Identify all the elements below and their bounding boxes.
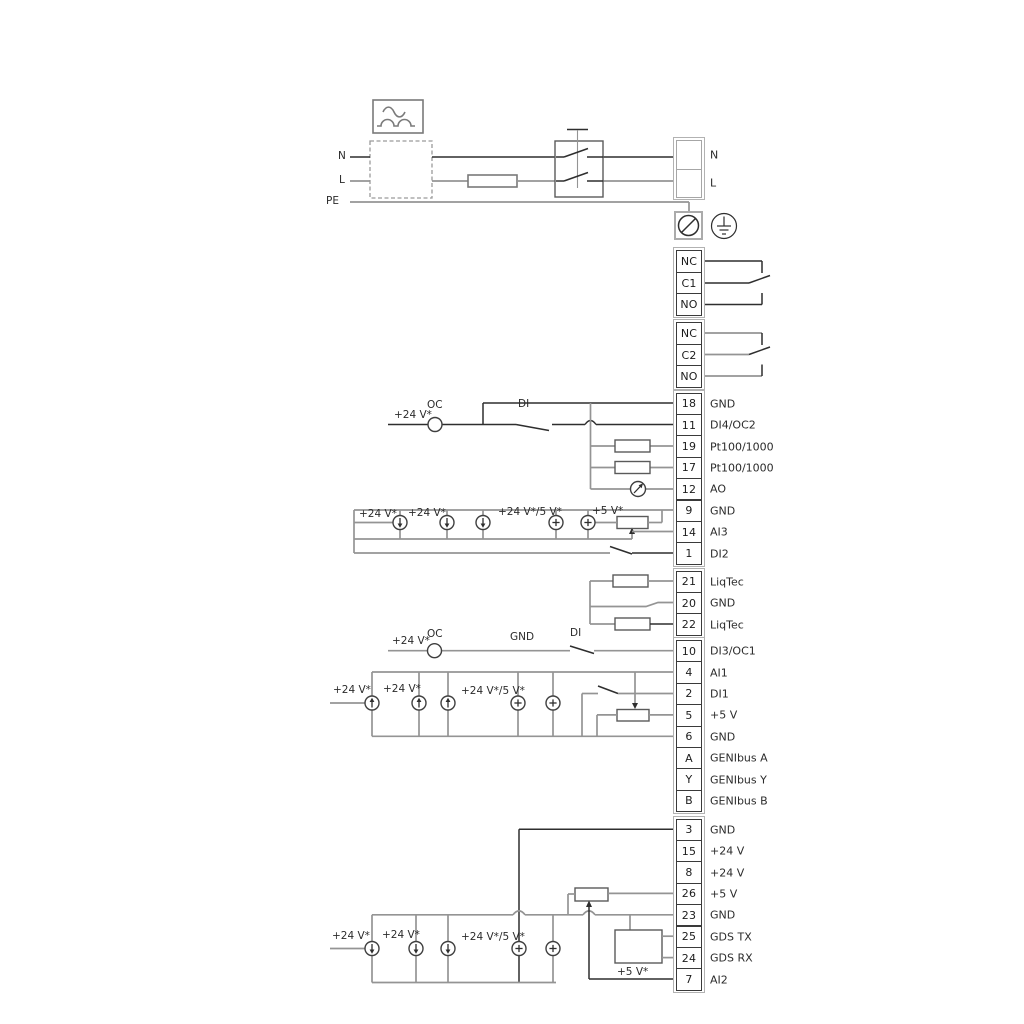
terminal-cell-20: 20 xyxy=(676,592,702,614)
ai1-di1-wiring xyxy=(330,672,676,736)
terminal-cell-A: A xyxy=(676,747,702,769)
terminal-label-5: +5 V xyxy=(710,709,737,722)
terminal-cell-4: 4 xyxy=(676,661,702,683)
terminal-label-N: N xyxy=(710,148,718,161)
terminal-label-22: LiqTec xyxy=(710,618,744,631)
voltage-source-icon xyxy=(546,696,560,710)
terminal-label-17: Pt100/1000 xyxy=(710,461,774,474)
terminal-label-25: GDS TX xyxy=(710,930,752,943)
terminal-cell-22: 22 xyxy=(676,613,702,635)
terminal-cell-12: 12 xyxy=(676,478,702,500)
terminal-label-L: L xyxy=(710,177,716,190)
terminal-cell-5: 5 xyxy=(676,704,702,726)
current-source-icon xyxy=(365,942,379,956)
terminal-label-Y: GENIbus Y xyxy=(710,773,767,786)
liqtec-resistor-icon xyxy=(613,575,648,587)
current-source-icon xyxy=(441,696,455,710)
terminal-cell-26: 26 xyxy=(676,883,702,905)
terminal-cell-NO: NO xyxy=(676,293,702,316)
wire-label-mains-pe: PE xyxy=(326,195,339,207)
earth-icon xyxy=(712,214,737,239)
terminal-cell-N xyxy=(676,140,702,170)
terminal-label-2: DI1 xyxy=(710,688,729,701)
terminal-cell-L xyxy=(676,169,702,199)
terminal-cell-6: 6 xyxy=(676,726,702,748)
terminal-label-12: AO xyxy=(710,483,726,496)
wire-label-ai1-24v-1: +24 V* xyxy=(333,684,371,696)
ai2-gds-wiring xyxy=(330,829,676,982)
current-source-icon xyxy=(412,696,426,710)
terminal-label-14: AI3 xyxy=(710,526,728,539)
potentiometer-icon xyxy=(617,710,649,722)
terminal-cell-21: 21 xyxy=(676,571,702,593)
terminal-label-18: GND xyxy=(710,397,735,410)
terminal-label-3: GND xyxy=(710,823,735,836)
terminal-cell-25: 25 xyxy=(676,926,702,948)
terminal-cell-14: 14 xyxy=(676,521,702,543)
terminal-cell-C2: C2 xyxy=(676,344,702,367)
wire-label-oc1-oc: OC xyxy=(427,628,443,640)
wire-label-mains-l: L xyxy=(339,174,345,186)
pt100-resistor-icon xyxy=(615,440,650,452)
terminal-label-4: AI1 xyxy=(710,666,728,679)
pt100-resistor-icon xyxy=(615,462,650,474)
wire-label-ai1-24v-2: +24 V* xyxy=(383,683,421,695)
terminal-cell-C1: C1 xyxy=(676,272,702,295)
terminal-cell-11: 11 xyxy=(676,414,702,436)
gds-module-box xyxy=(615,930,662,963)
relay2-contact-wiring xyxy=(702,333,770,376)
terminal-cell-NC: NC xyxy=(676,250,702,273)
main-switch-box xyxy=(555,141,603,197)
potentiometer-icon xyxy=(575,888,608,901)
terminal-cell-Y: Y xyxy=(676,768,702,790)
terminal-label-15: +24 V xyxy=(710,845,744,858)
voltage-source-icon xyxy=(581,516,595,530)
terminal-label-11: DI4/OC2 xyxy=(710,419,756,432)
terminal-label-6: GND xyxy=(710,730,735,743)
terminal-cell-1: 1 xyxy=(676,542,702,564)
terminal-label-B: GENIbus B xyxy=(710,795,768,808)
wire-label-ai3-24v5v: +24 V*/5 V* xyxy=(498,506,562,518)
liqtec-resistor-icon xyxy=(615,618,650,630)
wire-label-ai3-24v-2: +24 V* xyxy=(408,507,446,519)
terminal-cell-2: 2 xyxy=(676,683,702,705)
terminal-label-20: GND xyxy=(710,597,735,610)
current-source-icon xyxy=(441,942,455,956)
terminal-cell-NO: NO xyxy=(676,365,702,388)
terminal-cell-B: B xyxy=(676,790,702,812)
current-source-icon xyxy=(409,942,423,956)
emc-filter-box xyxy=(370,141,432,198)
terminal-cell-24: 24 xyxy=(676,947,702,969)
terminal-label-26: +5 V xyxy=(710,887,737,900)
terminal-label-23: GND xyxy=(710,909,735,922)
terminal-cell-19: 19 xyxy=(676,435,702,457)
wire-label-ai2-24v-1: +24 V* xyxy=(332,930,370,942)
terminal-cell-23: 23 xyxy=(676,904,702,926)
wire-label-ai2-24v5v: +24 V*/5 V* xyxy=(461,931,525,943)
relay1-blade-icon xyxy=(749,276,770,284)
terminal-cell-9: 9 xyxy=(676,500,702,522)
voltage-source-icon xyxy=(546,942,560,956)
current-source-icon xyxy=(476,516,490,530)
terminal-label-8: +24 V xyxy=(710,866,744,879)
fuse-icon xyxy=(468,175,517,187)
wire-label-ai1-24v5v: +24 V*/5 V* xyxy=(461,685,525,697)
voltage-source-icon xyxy=(511,696,525,710)
liqtec-wiring xyxy=(590,575,676,630)
wire-label-mains-n: N xyxy=(338,150,346,162)
terminal-label-1: DI2 xyxy=(710,547,729,560)
relay2-blade-icon xyxy=(749,347,770,355)
terminal-label-10: DI3/OC1 xyxy=(710,645,756,658)
di3-switch-blade-icon xyxy=(570,646,594,654)
wire-label-ai3-5v: +5 V* xyxy=(592,505,623,517)
potentiometer-icon xyxy=(617,517,648,529)
ao-meter-icon xyxy=(631,482,646,497)
wire-label-oc1-24v: +24 V* xyxy=(392,635,430,647)
wiring-diagram: NLNCC1NONCC2NO18GND11DI4/OC219Pt100/1000… xyxy=(0,0,1024,1024)
terminal-label-24: GDS RX xyxy=(710,952,753,965)
di1-switch-blade-icon xyxy=(598,686,618,694)
wire-label-oc1-gnd: GND xyxy=(510,631,534,643)
voltage-source-icon xyxy=(512,942,526,956)
terminal-label-7: AI2 xyxy=(710,973,728,986)
terminal-cell-8: 8 xyxy=(676,861,702,883)
wire-label-gds-5v: +5 V* xyxy=(617,966,648,978)
terminal-cell-17: 17 xyxy=(676,457,702,479)
relay1-contact-wiring xyxy=(702,261,770,305)
wire-label-oc2-di: DI xyxy=(518,398,529,410)
wire-label-oc2-oc: OC xyxy=(427,399,443,411)
current-source-icon xyxy=(365,696,379,710)
terminal-cell-7: 7 xyxy=(676,968,702,990)
di2-switch-blade-icon xyxy=(610,547,632,555)
terminal-label-19: Pt100/1000 xyxy=(710,440,774,453)
terminal-cell-15: 15 xyxy=(676,840,702,862)
screw-terminal-icon xyxy=(675,212,702,239)
wiper-arrow-icon xyxy=(632,703,638,709)
terminal-cell-NC: NC xyxy=(676,322,702,345)
wire-label-oc1-di: DI xyxy=(570,627,581,639)
terminal-label-21: LiqTec xyxy=(710,575,744,588)
terminal-label-A: GENIbus A xyxy=(710,752,768,765)
terminal-label-9: GND xyxy=(710,504,735,517)
wire-label-ai2-24v-2: +24 V* xyxy=(382,929,420,941)
terminal-cell-3: 3 xyxy=(676,819,702,841)
terminal-cell-18: 18 xyxy=(676,393,702,415)
wire-label-ai3-24v-1: +24 V* xyxy=(359,508,397,520)
terminal-cell-10: 10 xyxy=(676,640,702,662)
di4-switch-blade-icon xyxy=(516,425,549,431)
